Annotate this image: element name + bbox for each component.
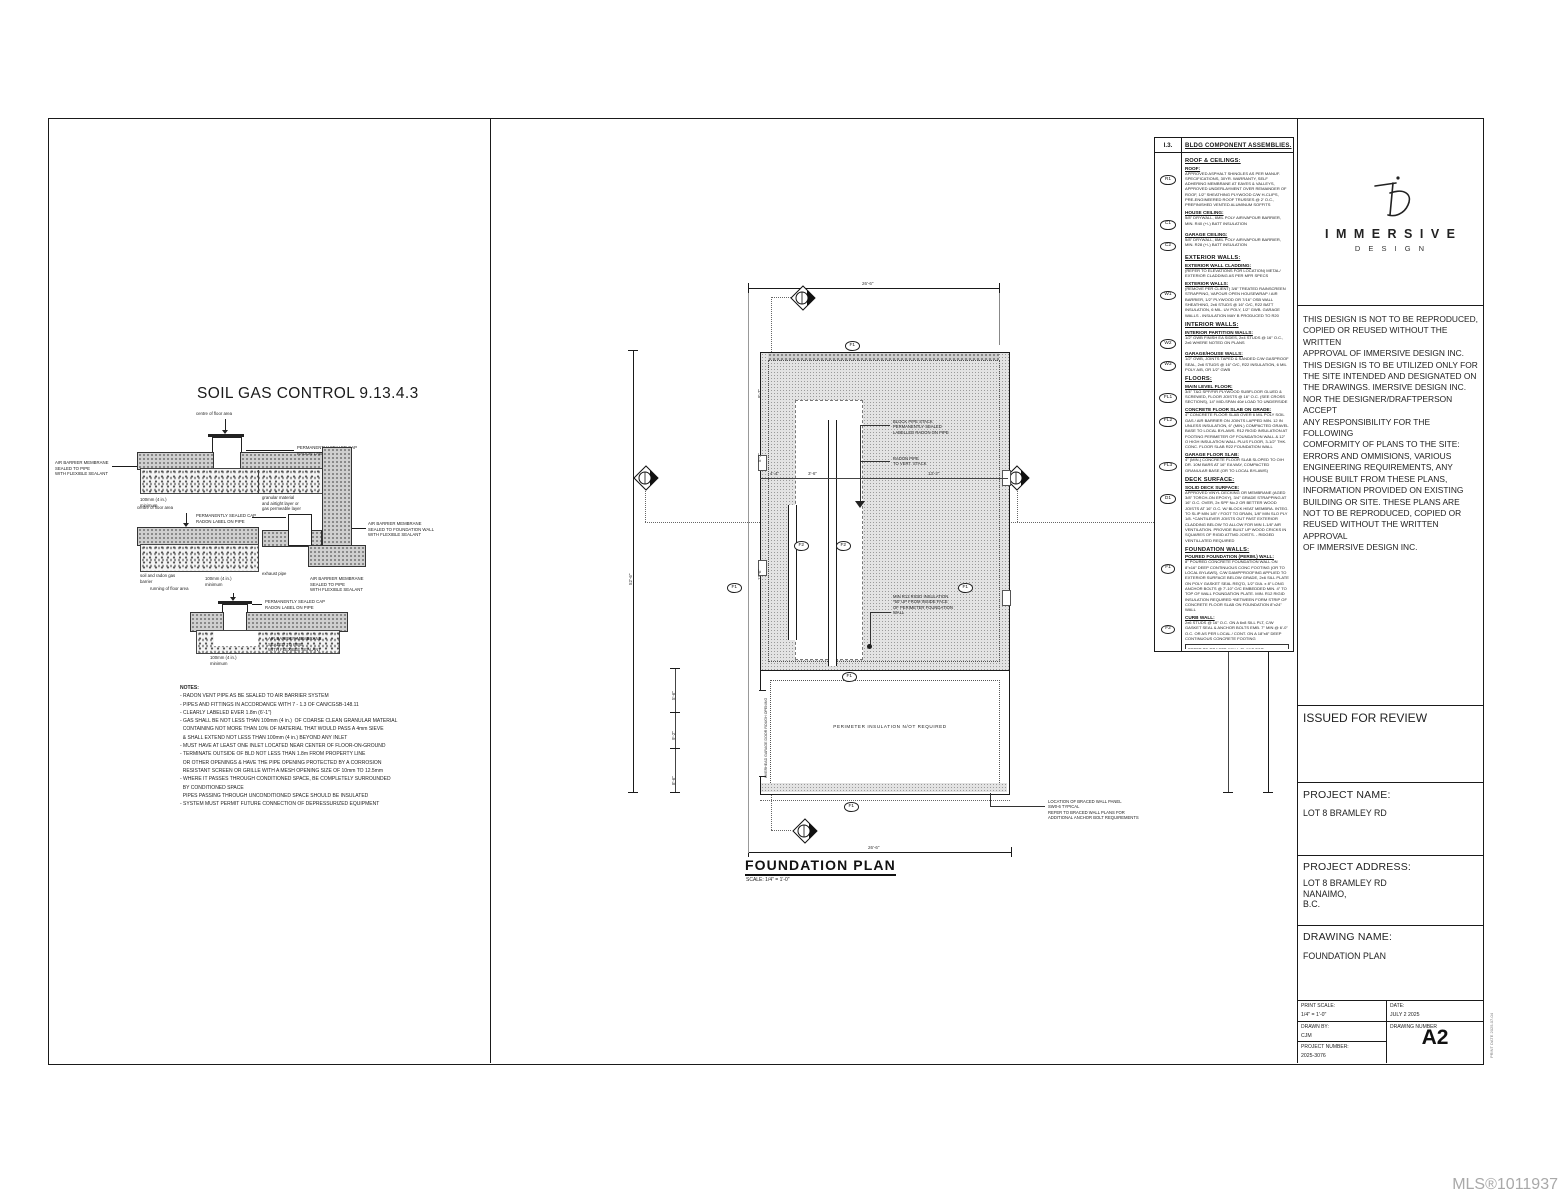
section-marker-left: [633, 465, 659, 491]
assembly-body: EXTERIOR WALLS: (REMOVE PER CLIENT) 3/8"…: [1181, 281, 1291, 318]
assemblies-row: R1 ROOF: APPROVED ASPHALT SHINGLES AS PE…: [1155, 166, 1291, 208]
assembly-body: GARAGE CEILING: 5/8" DRYWALL, 6MIL POLY …: [1181, 232, 1291, 251]
assemblies-row: ROOF & CEILINGS:: [1155, 158, 1291, 164]
assembly-tag-oval: W3: [1160, 361, 1176, 371]
dim-left-seg1: 5'-6": [671, 691, 676, 700]
garage-door-label: OVERHEAD GARAGE DOOR ROUGH OPENING: [764, 698, 768, 778]
tb-divider: [1386, 1021, 1484, 1022]
f1-label-left: F1: [727, 583, 742, 593]
d2-footing: [308, 545, 366, 567]
mls-watermark: MLS®1011937: [1452, 1176, 1558, 1194]
braced-wall-annotation: LOCATION OF BRACED WALL PANEL SW0-6 TYPI…: [1048, 799, 1139, 821]
note-line: BY CONDITIONED SPACE: [180, 784, 397, 792]
tb-divider: [1297, 305, 1484, 306]
assembly-body: GARAGE FLOOR SLAB: 4" (MIN.) CONCRETE FL…: [1181, 452, 1291, 473]
dim-left-seg3: 8'-6": [671, 776, 676, 785]
d1-leader-cap: [246, 450, 294, 451]
braced-leader-h: [990, 806, 1045, 807]
inner-dim1: 4'-4": [770, 471, 779, 476]
note-line: - GAS SHALL BE NOT LESS THAN 100mm (4 in…: [180, 717, 397, 725]
d3-leader-cap: [252, 604, 262, 605]
radon-leader-v: [860, 425, 861, 503]
d3-slab-left: [190, 612, 224, 632]
note-line: - CLEARLY LABELED EVER 1.8m (6'-1"): [180, 709, 397, 717]
assemblies-row: F2 CURB WALL: 2x6 STUDS @ 16" O.C. ON A …: [1155, 615, 1291, 641]
assembly-tag-oval: FL1: [1159, 393, 1176, 403]
note-line: - WHERE IT PASSES THROUGH CONDITIONED SP…: [180, 775, 397, 783]
drawn-by-value: CJM: [1301, 1033, 1312, 1039]
assemblies-row: FL3 GARAGE FLOOR SLAB: 4" (MIN.) CONCRET…: [1155, 452, 1291, 473]
assemblies-row: FL2 CONCRETE FLOOR SLAB ON GRADE: 4" CON…: [1155, 407, 1291, 449]
status-text: ISSUED FOR REVIEW: [1303, 711, 1427, 725]
dim-top-label: 26'-6": [862, 281, 873, 286]
assembly-tag-oval: F1: [1161, 564, 1176, 574]
assembly-heading: EXTERIOR WALLS:: [1185, 255, 1289, 261]
d3-arrow-label: running of floor area: [150, 586, 188, 592]
assembly-text: APPROVED VINYL DECKING OR MEMBRANE (AGED…: [1185, 490, 1289, 543]
dim-tick: [1011, 847, 1012, 857]
project-number-value: 2025-3076: [1301, 1053, 1326, 1059]
inner-vdim2: 5'-7": [757, 453, 762, 462]
plan-scale: SCALE: 1/4" = 1'-0": [746, 877, 790, 883]
assembly-body: FLOORS:: [1181, 376, 1291, 382]
d2-bottom1-label: soil and radon gas barrier: [140, 573, 175, 584]
marker-dotted: [1017, 491, 1018, 522]
inner-dim3: 13'-2": [928, 471, 939, 476]
note-line: RESISTANT SCREEN OR GRILLE WITH A MESH O…: [180, 767, 397, 775]
section-marker-top: [790, 285, 816, 311]
assembly-heading: FLOORS:: [1185, 376, 1289, 382]
d1-gravel: [140, 468, 332, 494]
assembly-body: CURB WALL: 2x6 STUDS @ 16" O.C. ON A 6x8…: [1181, 615, 1291, 641]
f2-label-a: F2: [794, 541, 809, 551]
f1-label-right: F1: [958, 583, 973, 593]
d2-right-label: AIR BARRIER MEMBRANE SEALED TO FOUNDATIO…: [368, 521, 434, 538]
drawn-by-label: DRAWN BY:: [1301, 1024, 1329, 1030]
assembly-tag: R1: [1155, 166, 1181, 208]
assembly-tag-oval: W2: [1160, 339, 1176, 349]
assembly-body: DECK SURFACE:: [1181, 477, 1291, 483]
assemblies-row: INTERIOR WALLS:: [1155, 322, 1291, 328]
assemblies-row: EXTERIOR WALL CLADDING: (REFER TO ELEVAT…: [1155, 263, 1291, 279]
assembly-body: SOLID DECK SURFACE: APPROVED VINYL DECKI…: [1181, 485, 1291, 543]
assembly-tag: [1155, 263, 1181, 279]
assemblies-row: C1 HOUSE CEILING: 5/8" DRYWALL, 6MIL POL…: [1155, 210, 1291, 229]
assembly-tag: FL1: [1155, 384, 1181, 405]
title-block-border: [1297, 118, 1298, 1063]
d2-arrow-label: centre of floor area: [137, 505, 173, 511]
garage-footing-dashed: [770, 680, 1000, 785]
project-number-label: PROJECT NUMBER:: [1301, 1044, 1349, 1050]
wall-gap: [1002, 590, 1011, 606]
assembly-tag-oval: FL3: [1159, 462, 1176, 472]
assembly-body: MAIN LEVEL FLOOR: 3/4" T&G SPF/FIR PLYWO…: [1181, 384, 1291, 405]
assemblies-table: I.3. BLDG COMPONENT ASSEMBLIES. ROOF & C…: [1154, 137, 1294, 652]
assembly-text: 8" POURED CONCRETE FOUNDATION WALL ON 8"…: [1185, 559, 1289, 612]
assembly-tag: D1: [1155, 485, 1181, 543]
d2-leader-right: [352, 528, 366, 529]
note-line: - SYSTEM MUST PERMIT FUTURE CONNECTION O…: [180, 800, 397, 808]
note-line: - MUST HAVE AT LEAST ONE INLET LOCATED N…: [180, 742, 397, 750]
f1-label-garage-bottom: F1: [844, 802, 859, 812]
assemblies-row: FLOORS:: [1155, 376, 1291, 382]
perimeter-insulation-note: PERIMETER INSULATION N/OT REQUIRED: [780, 724, 1000, 729]
dim-tick: [670, 792, 680, 793]
assembly-tag: FL3: [1155, 452, 1181, 473]
f1-label-garage-top: F1: [842, 672, 857, 682]
print-scale-label: PRINT SCALE:: [1301, 1003, 1335, 1009]
radon-pipe-annotation: RADON PIPE TO VERT. STACK: [893, 456, 927, 467]
assemblies-row: F1 POURED FOUNDATION (PERIM.) WALL: 8" P…: [1155, 554, 1291, 612]
tb-divider: [1297, 1021, 1386, 1022]
d2-bottom4-label: AIR BARRIER MEMBRANE SEALED TO PIPE WITH…: [310, 576, 363, 593]
note-line: - PIPES AND FITTINGS IN ACCORDANCE WITH …: [180, 701, 397, 709]
plan-title: FOUNDATION PLAN: [745, 857, 896, 876]
assembly-tag-oval: F2: [1161, 625, 1176, 635]
f1-label-top: F1: [845, 341, 860, 351]
assembly-tag: [1155, 158, 1181, 164]
date-label: DATE:: [1390, 1003, 1404, 1009]
assembly-text: 4" (MIN.) CONCRETE FLOOR SLAB SLOPED TO …: [1185, 457, 1289, 473]
assembly-tag: W2: [1155, 330, 1181, 349]
assembly-tag-oval: C1: [1160, 220, 1175, 230]
project-name-value: LOT 8 BRAMLEY RD: [1303, 808, 1387, 818]
assembly-tag-oval: W1: [1160, 291, 1176, 301]
soil-gas-title: SOIL GAS CONTROL 9.13.4.3: [197, 385, 419, 403]
dim-tick: [670, 748, 680, 749]
section-marker-bottom: [792, 818, 818, 844]
assembly-text: REFER TO BRACED WALL PLANS FOR ADDITIONA…: [1185, 644, 1289, 649]
assembly-tag-oval: R1: [1160, 175, 1175, 185]
assembly-heading: FOUNDATION WALLS:: [1185, 547, 1289, 553]
d2-bottom3-label: exhaust pipe: [262, 571, 286, 577]
assembly-body: EXTERIOR WALLS:: [1181, 255, 1291, 261]
d2-gravel: [140, 544, 259, 572]
d3-cap-label: PERMANENTLY SEALED CAP RADON LABEL ON PI…: [265, 599, 325, 610]
d1-vent-pipe: [212, 437, 242, 470]
d2-cap-label: PERMANENTLY SEALED CAP RADON LABEL ON PI…: [196, 513, 256, 524]
inner-vdim1: 8'-7": [757, 389, 762, 398]
assembly-tag: [1155, 255, 1181, 261]
assemblies-row: D1 SOLID DECK SURFACE: APPROVED VINYL DE…: [1155, 485, 1291, 543]
dim-tick: [1263, 792, 1273, 793]
note-line: OR OTHER OPENINGS & HAVE THE PIPE OPENIN…: [180, 759, 397, 767]
insul-leader-h: [870, 612, 891, 613]
note-line: & SHALL EXTEND NOT LESS THAN 100mm (4 in…: [180, 734, 397, 742]
panel-divider: [490, 118, 491, 1063]
marker-dotted: [771, 830, 791, 831]
dim-left-seg2: 9'-2": [671, 731, 676, 740]
assembly-heading: INTERIOR WALLS:: [1185, 322, 1289, 328]
tb-divider: [1297, 925, 1484, 926]
assemblies-row: C2 GARAGE CEILING: 5/8" DRYWALL, 6MIL PO…: [1155, 232, 1291, 251]
print-scale-value: 1/4" = 1'-0": [1301, 1012, 1326, 1018]
inner-vdim3: 11'-6": [757, 569, 762, 580]
scanned-drawing-page: SOIL GAS CONTROL 9.13.4.3 centre of floo…: [0, 0, 1564, 1200]
assembly-body: GARAGE/HOUSE WALLS: 1/2" GWB, JOINTS TAP…: [1181, 351, 1291, 372]
assembly-tag: FL2: [1155, 407, 1181, 449]
assembly-tag: C1: [1155, 210, 1181, 229]
d2-leader-cap: [252, 517, 286, 518]
assembly-tag: [1155, 477, 1181, 483]
assembly-tag: C2: [1155, 232, 1181, 251]
marker-dotted: [645, 491, 646, 522]
brand-name: I M M E R S I V E: [1300, 227, 1482, 241]
note-line: - TERMINATE OUTSIDE OF BLD NOT LESS THAN…: [180, 750, 397, 758]
dim-tick: [670, 712, 680, 713]
assembly-text: 2x6 STUDS @ 16" O.C. ON A 6x8 SILL PLT, …: [1185, 620, 1289, 641]
dim-line-top: [748, 288, 1000, 289]
d3-bottom-label: 100mm (4 in.) minimum: [210, 655, 237, 666]
drawing-name-value: FOUNDATION PLAN: [1303, 951, 1386, 961]
insul-leader-dot: [867, 644, 872, 649]
dim-tick: [628, 350, 638, 351]
assemblies-row: EXTERIOR WALLS:: [1155, 255, 1291, 261]
d3-cavity: [214, 631, 258, 646]
assembly-tag: W1: [1155, 281, 1181, 318]
assembly-text: 4" CONCRETE FLOOR SLAB OVER 6 MIL POLY S…: [1185, 412, 1289, 449]
dim-tick: [670, 668, 680, 669]
project-address-label: PROJECT ADDRESS:: [1303, 861, 1411, 873]
d3-slab-right: [246, 612, 348, 632]
brand-logo-icon: [1300, 175, 1482, 223]
d2-foundation-wall: [322, 447, 352, 547]
assembly-tag: F2: [1155, 615, 1181, 641]
d2-bottom2-label: 100mm (4 in.) minimum: [205, 576, 232, 587]
assembly-tag-oval: FL2: [1159, 417, 1176, 427]
assemblies-row: W3 GARAGE/HOUSE WALLS: 1/2" GWB, JOINTS …: [1155, 351, 1291, 372]
garage-dotted-bottom: [760, 800, 1010, 801]
assemblies-row: DECK SURFACE:: [1155, 477, 1291, 483]
project-address-value: LOT 8 BRAMLEY RD NANAIMO, B.C.: [1303, 878, 1387, 910]
braced-leader-v: [990, 793, 991, 807]
d2-pipe-elbow: [288, 514, 312, 546]
assemblies-row: FL1 MAIN LEVEL FLOOR: 3/4" T&G SPF/FIR P…: [1155, 384, 1291, 405]
brand-block: I M M E R S I V E D E S I G N: [1300, 120, 1482, 303]
dim-tick: [999, 283, 1000, 293]
notes-title: NOTES:: [180, 684, 397, 692]
assembly-body: INTERIOR PARTITION WALLS: 1/2" GWB FINIS…: [1181, 330, 1291, 349]
assembly-body: HOUSE CEILING: 5/8" DRYWALL, 6MIL POLY A…: [1181, 210, 1291, 229]
dim-line-left-outer: [633, 350, 634, 793]
assembly-body: ROOF & CEILINGS:: [1181, 158, 1291, 164]
assembly-text: 5/8" DRYWALL, 6MIL POLY AIR/VAPOUR BARRI…: [1185, 215, 1289, 226]
d1-leader-granular: [258, 470, 259, 494]
tb-divider: [1297, 855, 1484, 856]
radon-leader-h2: [860, 461, 890, 462]
assembly-text: (REFER TO ELEVATIONS FOR LOCATION) METAL…: [1185, 268, 1289, 279]
garage-bottom-band: [761, 783, 1007, 792]
d3-vent-pipe: [222, 604, 248, 632]
assembly-body: POURED FOUNDATION (PERIM.) WALL: 8" POUR…: [1181, 554, 1291, 612]
dim-bottom-label: 26'-6": [868, 845, 879, 850]
assembly-heading: DECK SURFACE:: [1185, 477, 1289, 483]
assembly-text: (REMOVE PER CLIENT) 3/8" TREATED RAINSCR…: [1185, 286, 1289, 318]
block-pipe-annotation: BLOCK PIPE STACK PERMANENTLY SEALED LABE…: [893, 419, 949, 435]
house-top-wall-band: [768, 353, 999, 360]
drawing-number-value: A2: [1386, 1026, 1484, 1050]
disclaimer-text: THIS DESIGN IS NOT TO BE REPRODUCED, COP…: [1303, 314, 1479, 554]
assembly-tag: [1155, 644, 1181, 649]
assemblies-row: W1 EXTERIOR WALLS: (REMOVE PER CLIENT) 3…: [1155, 281, 1291, 318]
tb-divider: [1297, 1000, 1484, 1001]
f2-label-b: F2: [836, 541, 851, 551]
assembly-body: FOUNDATION WALLS:: [1181, 547, 1291, 553]
assembly-tag-oval: C2: [1160, 242, 1175, 252]
note-line: CONTAINING NOT MORE THAN 10% OF MATERIAL…: [180, 725, 397, 733]
inner-dim2: 3'-6": [808, 471, 817, 476]
assembly-tag: [1155, 376, 1181, 382]
assembly-body: INTERIOR WALLS:: [1181, 322, 1291, 328]
tb-divider: [1297, 782, 1484, 783]
d1-left-label: AIR BARRIER MEMBRANE SEALED TO PIPE WITH…: [55, 460, 125, 477]
tb-divider: [1297, 705, 1484, 706]
assembly-body: CONCRETE FLOOR SLAB ON GRADE: 4" CONCRET…: [1181, 407, 1291, 449]
insul-leader-v: [870, 612, 871, 646]
assembly-text: 3/4" T&G SPF/FIR PLYWOOD SUBFLOOR GLUED …: [1185, 389, 1289, 405]
rigid-insulation-annotation: MIN R12 RIGID INSULATION *50' UP FROM IN…: [893, 594, 953, 616]
brand-sub: D E S I G N: [1300, 244, 1482, 253]
notes-list: - RADON VENT PIPE AS BE SEALED TO AIR BA…: [180, 692, 397, 808]
assembly-tag: [1155, 322, 1181, 328]
assembly-tag-oval: D1: [1160, 494, 1175, 504]
assembly-text: 1/2" GWB, JOINTS TAPED & SANDED C/W GASP…: [1185, 356, 1289, 372]
assembly-body: ROOF: APPROVED ASPHALT SHINGLES AS PER M…: [1181, 166, 1291, 208]
assembly-heading: ROOF & CEILINGS:: [1185, 158, 1289, 164]
drawing-name-label: DRAWING NAME:: [1303, 931, 1392, 943]
assemblies-row: REFER TO BRACED WALL PLANS FOR ADDITIONA…: [1155, 644, 1291, 649]
inner-dim-line: [760, 478, 1008, 479]
assemblies-rows: ROOF & CEILINGS: R1 ROOF: APPROVED ASPHA…: [1155, 154, 1291, 649]
radon-leader-h1: [860, 425, 890, 426]
marker-dotted: [771, 297, 791, 298]
assembly-text: APPROVED ASPHALT SHINGLES AS PER MANUF. …: [1185, 171, 1289, 208]
dim-tick: [748, 283, 749, 293]
project-name-label: PROJECT NAME:: [1303, 789, 1391, 801]
note-line: - RADON VENT PIPE AS BE SEALED TO AIR BA…: [180, 692, 397, 700]
dim-tick: [628, 792, 638, 793]
assembly-body: EXTERIOR WALL CLADDING: (REFER TO ELEVAT…: [1181, 263, 1291, 279]
note-line: PIPES PASSING THROUGH UNCONDITIONED SPAC…: [180, 792, 397, 800]
dim-tick: [1223, 792, 1233, 793]
d1-bottom-right-label: granular material and airtight layer or …: [262, 495, 301, 512]
tb-divider: [1297, 1041, 1386, 1042]
radon-symbol: [855, 501, 865, 508]
dim-ext-line: [999, 293, 1000, 345]
assemblies-header-title: BLDG COMPONENT ASSEMBLIES.: [1182, 142, 1293, 149]
notes-block: NOTES: - RADON VENT PIPE AS BE SEALED TO…: [180, 684, 397, 808]
assembly-body: REFER TO BRACED WALL PLANS FOR ADDITIONA…: [1181, 644, 1291, 649]
assemblies-header: I.3. BLDG COMPONENT ASSEMBLIES.: [1155, 138, 1293, 153]
assemblies-header-tag: I.3.: [1155, 138, 1182, 152]
assembly-text: 5/8" DRYWALL, 6MIL POLY AIR/VAPOUR BARRI…: [1185, 237, 1289, 248]
assembly-tag: W3: [1155, 351, 1181, 372]
d3-right-label: AIR BARRIER MEMBRANE SEALED TO PIPE WITH…: [268, 636, 321, 653]
side-print-note: PRINT DATE 2025-07-04: [1489, 1013, 1494, 1058]
assemblies-row: FOUNDATION WALLS:: [1155, 547, 1291, 553]
assembly-tag: [1155, 547, 1181, 553]
assembly-tag: F1: [1155, 554, 1181, 612]
marker-dotted: [771, 297, 772, 352]
dim-left-overall: 52'-6": [628, 574, 633, 585]
dim-line-bottom: [748, 852, 1012, 853]
assembly-text: 1/2" GWB FINISH EA SIDES, 2x4 STUDS @ 16…: [1185, 335, 1289, 346]
dim-ext-left: [748, 293, 749, 853]
assemblies-row: W2 INTERIOR PARTITION WALLS: 1/2" GWB FI…: [1155, 330, 1291, 349]
date-value: JULY 2 2025: [1390, 1012, 1420, 1018]
d1-arrow-label: centre of floor area: [196, 411, 232, 417]
curb-wall-short: [788, 505, 797, 640]
